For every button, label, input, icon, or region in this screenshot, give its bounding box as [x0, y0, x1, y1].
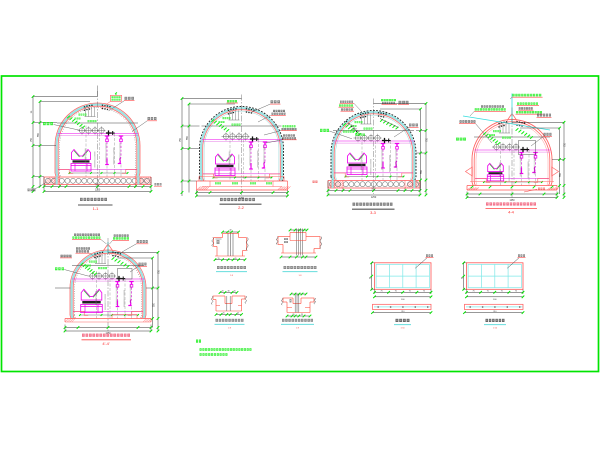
svg-text:75: 75 [501, 291, 503, 293]
svg-text:25: 25 [237, 313, 239, 315]
svg-text:75: 75 [381, 291, 383, 293]
svg-text:1250: 1250 [95, 189, 101, 192]
svg-text:75: 75 [487, 291, 489, 293]
svg-text:310: 310 [493, 311, 496, 313]
svg-text:4'-4': 4'-4' [102, 341, 110, 346]
svg-text:75: 75 [515, 291, 517, 293]
svg-text:75: 75 [423, 291, 425, 293]
svg-text:1250: 1250 [509, 200, 515, 202]
svg-text:30: 30 [227, 291, 229, 293]
svg-text:1-1: 1-1 [93, 206, 100, 211]
svg-text:3-3: 3-3 [370, 210, 377, 215]
svg-text:75: 75 [409, 291, 411, 293]
svg-text:75: 75 [473, 291, 475, 293]
svg-text:950: 950 [96, 184, 101, 187]
svg-text:1250: 1250 [371, 196, 377, 199]
svg-text:20: 20 [221, 291, 223, 293]
svg-text:75: 75 [395, 291, 397, 293]
svg-text:15: 15 [234, 258, 236, 260]
svg-text:310: 310 [401, 311, 404, 313]
svg-text:2-2: 2-2 [238, 205, 245, 210]
svg-text:25: 25 [222, 313, 224, 315]
svg-text:20: 20 [233, 291, 235, 293]
svg-text:25: 25 [301, 314, 303, 316]
svg-text:4-4: 4-4 [508, 209, 515, 214]
svg-text:15: 15 [217, 258, 219, 260]
svg-text:950: 950 [372, 188, 377, 191]
svg-text:25: 25 [292, 314, 294, 316]
